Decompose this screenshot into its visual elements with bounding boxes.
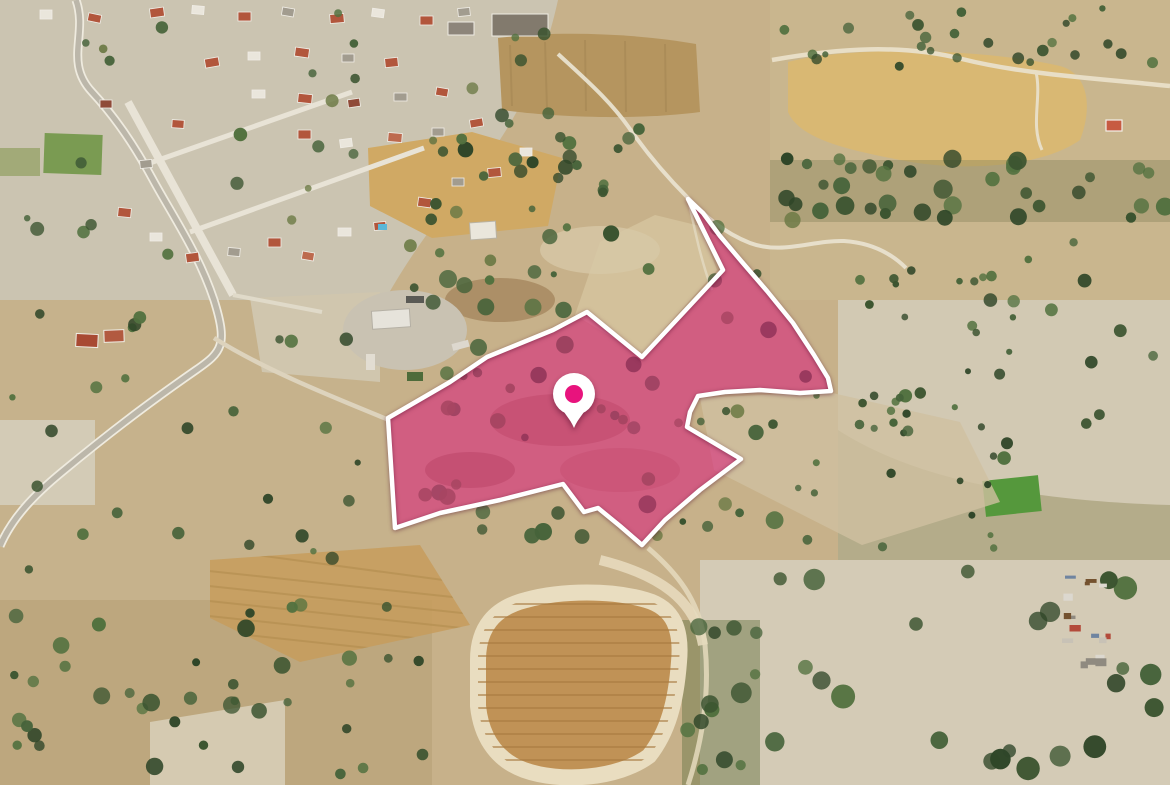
house [100, 100, 112, 108]
tree [1126, 212, 1136, 222]
scrap-item [1081, 661, 1088, 668]
tree [410, 283, 419, 292]
tree [818, 180, 828, 190]
tree [766, 511, 784, 529]
tree [90, 381, 102, 393]
pale-patch [540, 226, 660, 274]
tree [845, 162, 857, 174]
tree [30, 222, 44, 236]
tree [1016, 757, 1039, 780]
tree [886, 469, 895, 478]
tree [834, 153, 846, 165]
tree [509, 152, 523, 166]
tree [802, 159, 812, 169]
tree [133, 311, 146, 324]
tree [112, 507, 123, 518]
tree [1010, 208, 1027, 225]
tree [384, 654, 393, 663]
scrap-item [1085, 582, 1090, 586]
tree [199, 741, 208, 750]
farm-building [371, 309, 410, 330]
tree [876, 166, 892, 182]
tree [538, 28, 551, 41]
tree [228, 679, 239, 690]
tree [984, 481, 991, 488]
tree [525, 299, 542, 316]
tree [736, 760, 746, 770]
tree [296, 529, 309, 542]
tree [1033, 200, 1046, 213]
tree [812, 671, 830, 689]
tree [1143, 167, 1154, 178]
house [238, 12, 251, 21]
farmhouse-right [1106, 120, 1122, 131]
tree [85, 219, 96, 230]
tree [680, 518, 687, 525]
tree [285, 335, 298, 348]
tree [343, 495, 355, 507]
tree [896, 394, 904, 402]
tree [511, 34, 519, 42]
tree [803, 535, 813, 545]
tree [529, 206, 536, 213]
tree [551, 506, 564, 519]
tree [690, 618, 707, 635]
tree [1008, 152, 1026, 170]
tree [1085, 356, 1098, 369]
tree [1020, 187, 1032, 199]
tree [781, 153, 794, 166]
tree [961, 565, 975, 579]
tree [1145, 698, 1164, 717]
tree [1078, 274, 1092, 288]
tree [350, 74, 360, 84]
tree [251, 703, 267, 719]
tree [912, 19, 924, 31]
tree [263, 494, 273, 504]
tree [909, 617, 923, 631]
house [348, 98, 361, 108]
tree [968, 512, 975, 519]
tree [527, 156, 539, 168]
tree [731, 682, 752, 703]
tree [172, 527, 184, 539]
tree [334, 9, 342, 17]
tree [142, 694, 160, 712]
tree [804, 569, 825, 590]
tree [320, 422, 332, 434]
tree [326, 552, 339, 565]
tree [708, 626, 721, 639]
truck [366, 354, 375, 370]
tree [1107, 674, 1125, 692]
tree [719, 497, 732, 510]
tree [915, 387, 926, 398]
house [469, 118, 483, 128]
tree [784, 212, 800, 228]
tree [988, 532, 994, 538]
tree [326, 94, 339, 107]
house [150, 233, 162, 241]
tree [514, 165, 527, 178]
farm-machine [407, 372, 423, 381]
tree [603, 225, 619, 241]
house [228, 247, 241, 256]
tree [811, 54, 822, 65]
tree [234, 128, 248, 142]
house [394, 93, 407, 101]
tree [862, 159, 876, 173]
tree [438, 146, 448, 156]
tree [125, 688, 135, 698]
tree [822, 51, 828, 57]
tree [121, 374, 129, 382]
tree [952, 53, 961, 62]
tree [275, 335, 283, 343]
tree [907, 266, 916, 275]
tree [467, 82, 479, 94]
tree [9, 394, 15, 400]
tree [35, 309, 45, 319]
house [520, 148, 532, 156]
tree [917, 42, 926, 51]
tree [245, 608, 254, 617]
tree [1025, 256, 1033, 264]
tree [346, 679, 355, 688]
house [301, 251, 314, 261]
plowed-field-bottom [478, 593, 680, 778]
house [385, 57, 399, 67]
tree [542, 107, 554, 119]
tree [972, 329, 980, 337]
tree [10, 671, 18, 679]
tree [237, 620, 255, 638]
tree [701, 695, 719, 713]
tree [1070, 50, 1080, 60]
tree [643, 263, 655, 275]
tree [182, 422, 194, 434]
tree [1069, 238, 1077, 246]
tree [429, 137, 437, 145]
tree [28, 676, 39, 687]
house [204, 57, 219, 68]
house [372, 8, 385, 18]
house [417, 197, 431, 208]
green-field-small [0, 148, 40, 176]
tree [555, 302, 571, 318]
tree [950, 29, 960, 39]
tree [456, 277, 472, 293]
tree [1083, 735, 1106, 758]
tree [694, 714, 709, 729]
tree [1008, 295, 1020, 307]
tree [878, 542, 887, 551]
tree [169, 716, 180, 727]
tree [697, 418, 705, 426]
tree [956, 278, 963, 285]
tree [32, 481, 43, 492]
house [248, 52, 260, 60]
tree [99, 45, 108, 54]
red-roof-house [76, 333, 99, 347]
tree [505, 119, 514, 128]
tree [871, 425, 878, 432]
tree [13, 741, 22, 750]
tree [997, 451, 1011, 465]
tree [680, 723, 695, 738]
scrap-item [1065, 576, 1076, 579]
tree [920, 32, 931, 43]
tree [156, 21, 168, 33]
tree [21, 720, 33, 732]
tree [931, 731, 949, 749]
tree [45, 425, 58, 438]
house [40, 10, 52, 19]
house [172, 120, 185, 129]
tree [1099, 5, 1105, 11]
house [342, 54, 354, 62]
tree [831, 685, 855, 709]
tree [1103, 39, 1112, 48]
tree [970, 277, 978, 285]
aerial-listing-photo [0, 0, 1170, 785]
tree [983, 753, 1000, 770]
tree [342, 724, 351, 733]
tree [901, 314, 908, 321]
tree [858, 399, 867, 408]
tree [563, 150, 577, 164]
tree [305, 185, 312, 192]
house [340, 138, 353, 148]
tree [943, 150, 961, 168]
tree [553, 173, 563, 183]
tree [479, 171, 489, 181]
tree [903, 426, 914, 437]
house [458, 7, 471, 16]
house [281, 7, 294, 17]
house [420, 16, 433, 25]
scrap-item [1063, 594, 1072, 601]
tree [414, 656, 424, 666]
red-roof-house [104, 330, 124, 343]
tree [551, 271, 557, 277]
tree [310, 548, 316, 554]
tree [748, 425, 763, 440]
tree [1116, 662, 1129, 675]
tree [811, 489, 818, 496]
tree [722, 407, 730, 415]
tree [228, 406, 238, 416]
tree [25, 565, 33, 573]
tree [440, 366, 454, 380]
tree [813, 459, 820, 466]
scrap-item [1064, 613, 1071, 619]
tree [731, 404, 745, 418]
tree [887, 407, 895, 415]
tree [430, 198, 442, 210]
tree [456, 134, 467, 145]
tree [93, 687, 110, 704]
tree [986, 271, 997, 282]
tree [798, 660, 813, 675]
tree [1134, 198, 1149, 213]
tree [417, 749, 429, 761]
villa [469, 221, 496, 240]
tree [1140, 664, 1161, 685]
tree [855, 275, 865, 285]
warehouse-small [448, 22, 474, 35]
house [388, 132, 403, 142]
tree [294, 598, 307, 611]
house [140, 159, 153, 168]
tree [555, 132, 566, 143]
tree [426, 295, 441, 310]
tree [9, 609, 24, 624]
tree [1147, 57, 1158, 68]
tree [865, 203, 877, 215]
plowed-field-top [498, 34, 700, 117]
tree [952, 404, 958, 410]
house [118, 207, 132, 217]
tree [1012, 52, 1024, 64]
tree [1037, 45, 1049, 57]
tree [1003, 744, 1016, 757]
tree [223, 696, 240, 713]
tree [895, 62, 904, 71]
swimming-pool [378, 224, 387, 230]
tree [358, 763, 369, 774]
tree [192, 658, 200, 666]
tree [902, 410, 910, 418]
tree [914, 204, 931, 221]
tree [485, 275, 495, 285]
tree [1045, 303, 1058, 316]
tree [82, 39, 90, 47]
tree [24, 215, 30, 221]
tree [843, 23, 854, 34]
tree [232, 761, 244, 773]
scrap-item [1062, 638, 1073, 643]
tree [1068, 14, 1076, 22]
tree [1040, 602, 1060, 622]
tree [162, 249, 173, 260]
tree [990, 452, 997, 459]
tree [542, 229, 557, 244]
trailer [406, 296, 424, 303]
tree [893, 281, 900, 288]
house [185, 252, 199, 263]
tree [774, 572, 787, 585]
tree [470, 339, 487, 356]
tree [865, 300, 874, 309]
tree [1114, 324, 1127, 337]
tree [855, 420, 865, 430]
tree [458, 142, 474, 158]
tree [1010, 314, 1016, 320]
tree [1148, 351, 1158, 361]
tree [795, 485, 801, 491]
tree [92, 618, 106, 632]
tree [382, 602, 392, 612]
tree [1072, 186, 1086, 200]
tree [598, 188, 608, 198]
house [149, 7, 164, 18]
scrap-item [1095, 658, 1106, 666]
tree [404, 239, 417, 252]
tree [927, 47, 935, 55]
scrap-item [1099, 637, 1107, 643]
tree [614, 144, 623, 153]
tree [439, 270, 457, 288]
tree [1063, 20, 1070, 27]
house [294, 47, 309, 58]
tree [812, 203, 829, 220]
tree [355, 460, 361, 466]
tree [702, 521, 713, 532]
tree [697, 764, 708, 775]
house [298, 130, 311, 139]
tree [965, 368, 971, 374]
tree [1006, 349, 1012, 355]
tree [76, 157, 87, 168]
tree [1047, 38, 1056, 47]
tree [990, 544, 997, 551]
tree [349, 149, 359, 159]
tree [1026, 58, 1034, 66]
tree [53, 637, 70, 654]
tree [1001, 437, 1013, 449]
tree [340, 333, 353, 346]
tree [335, 769, 346, 780]
tree-band-ground [770, 160, 1170, 222]
tree [1085, 172, 1095, 182]
tree [985, 172, 999, 186]
house [435, 87, 448, 97]
house [268, 238, 281, 247]
pin-dot [565, 385, 583, 403]
house [488, 167, 502, 177]
house [192, 5, 205, 14]
aerial-scene [0, 0, 1170, 785]
tree [984, 293, 998, 307]
tree [230, 177, 243, 190]
tree [833, 177, 850, 194]
tree [768, 419, 778, 429]
tree [77, 528, 89, 540]
tree [435, 248, 444, 257]
tree [1081, 418, 1092, 429]
tree [750, 627, 762, 639]
tree [450, 206, 463, 219]
house [338, 228, 351, 236]
tree [983, 38, 993, 48]
tree [146, 758, 163, 775]
farmyard-pad [343, 290, 467, 370]
tree [994, 369, 1005, 380]
tree [60, 661, 71, 672]
tree [934, 180, 953, 199]
tree [312, 140, 324, 152]
tree [780, 25, 790, 35]
tree [957, 7, 967, 17]
tree [105, 56, 115, 66]
tree [308, 69, 316, 77]
tree [575, 529, 590, 544]
tree [524, 528, 540, 544]
tree [1094, 409, 1105, 420]
house [252, 90, 265, 98]
tree [528, 265, 542, 279]
